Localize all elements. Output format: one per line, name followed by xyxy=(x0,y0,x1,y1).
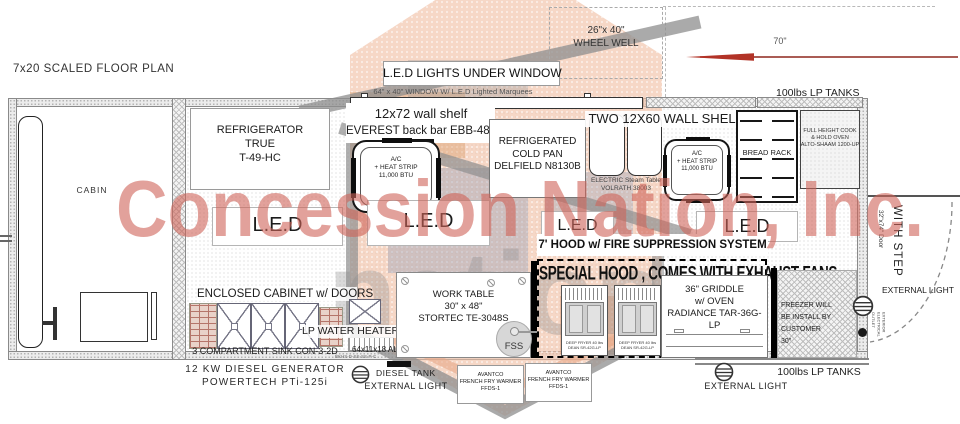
wheel-well-guide-h xyxy=(663,6,935,8)
sink-drainboard-left xyxy=(189,303,217,349)
bread-rack-shelves-right xyxy=(772,120,794,200)
bread-rack-label: BREAD RACK xyxy=(738,148,796,157)
work-table-screw-tl xyxy=(401,277,409,285)
ac-unit-2-tab-right xyxy=(727,155,731,187)
fss-stub-line xyxy=(519,331,537,333)
fryer-2-burner xyxy=(618,288,657,300)
griddle-line-2 xyxy=(666,346,763,347)
fryer-2-basket-right xyxy=(640,305,654,333)
ac-unit-2-label: A/C + HEAT STRIP 11,000 BTU xyxy=(666,151,728,174)
water-heater-label: LP WATER HEATER xyxy=(302,325,398,338)
fryer-1-basket-left xyxy=(569,305,583,333)
cabinet-part-no-label: BKHS-D-SS-SS-P-C xyxy=(335,354,395,359)
bread-rack: BREAD RACK xyxy=(736,110,798,203)
deep-fryer-1: DEEP FRYER 40 lbs DEAN SR-42G-LP xyxy=(561,285,608,356)
hitch-line-1 xyxy=(0,235,12,237)
diesel-tank-label: DIESEL TANK xyxy=(376,368,446,378)
external-light-label-1: EXTERNAL LIGHT xyxy=(358,381,454,392)
wheel-well-label: 26"x 40" WHEEL WELL xyxy=(549,25,663,50)
hood-side-panel-left xyxy=(531,261,537,358)
ac-unit-1-tab-left xyxy=(351,158,356,198)
ac-unit-2-tab-left xyxy=(663,155,667,187)
water-heater-unit xyxy=(349,299,381,324)
cook-hold-oven-label: FULL HEIGHT COOK & HOLD OVEN ALTO-SHAAM … xyxy=(800,128,860,149)
sink-label: 3 COMPARTMENT SINK CON-3-2D xyxy=(190,346,340,357)
lp-tank-rack-1 xyxy=(646,97,756,108)
back-bar-label: EVEREST back bar EBB-48-24 xyxy=(346,124,496,138)
fss-unit: FSS xyxy=(496,321,532,357)
sink-bowl-1 xyxy=(217,303,251,349)
cabin-label: CABIN xyxy=(62,185,122,196)
diesel-tank-bar xyxy=(387,361,411,367)
fryer-2-vat xyxy=(618,302,657,336)
external-light-icon-2 xyxy=(714,362,734,382)
page-title: 7x20 SCALED FLOOR PLAN xyxy=(13,63,213,75)
sink-bowl-2 xyxy=(251,303,285,349)
external-light-label-2: EXTERNAL LIGHT xyxy=(700,381,792,392)
fryer-2-label: DEEP FRYER 40 lbs DEAN SR-42G-LP xyxy=(615,340,660,350)
ac-unit-2-tab-top xyxy=(686,137,710,141)
fss-inner-circle xyxy=(510,327,519,336)
sink-bowl-2-drain xyxy=(265,323,272,330)
dimension-70-label: 70" xyxy=(762,36,798,47)
fry-warmer-2: AVANTCO FRENCH FRY WARMER FFDS-1 xyxy=(525,363,592,402)
external-light-label-3: EXTERNAL LIGHT xyxy=(876,285,960,296)
cook-hold-oven-box xyxy=(800,110,860,189)
work-table-screw-br xyxy=(487,279,495,287)
led-sign-1: L.E.D xyxy=(212,207,343,246)
wall-shelf-label: 12x72 wall shelf xyxy=(346,106,496,122)
lp-tanks-bottom-label: 100lbs LP TANKS xyxy=(777,366,861,379)
cabin-bench xyxy=(80,292,148,342)
generator-label: 12 KW DIESEL GENERATOR POWERTECH PTi-125… xyxy=(175,364,355,389)
work-table-screw-tr xyxy=(518,277,526,285)
lp-tank-rack-2 xyxy=(757,97,863,108)
cabin-bench-slat xyxy=(151,292,157,340)
fryer-1-basket-right xyxy=(587,305,601,333)
door-size-label: 32"x74" Door xyxy=(877,210,884,290)
led-sign-2: L.E.D xyxy=(367,200,490,246)
fryer-1-burner xyxy=(565,288,604,300)
window-size-label: 64" x 40" WINDOW W/ L.E.D Lighted Marque… xyxy=(368,87,538,96)
step-platform-line xyxy=(868,195,960,197)
griddle-label: 36" GRIDDLE w/ OVEN RADIANCE TAR-36G-LP xyxy=(662,284,767,332)
griddle-line-1 xyxy=(666,334,763,335)
griddle-notch-2 xyxy=(740,329,750,333)
led-lights-label: L.E.D LIGHTS UNDER WINDOW xyxy=(383,66,560,81)
ac-unit-2: A/C + HEAT STRIP 11,000 BTU xyxy=(664,139,730,201)
cabin-counter xyxy=(18,116,43,348)
freezer-note: FREEZER WILL BE INSTALL BY CUSTOMER 30" xyxy=(781,300,856,348)
dimension-70-arrowhead xyxy=(686,53,754,61)
two-wall-shelf-label: TWO 12X60 WALL SHELF xyxy=(585,111,747,127)
steam-table-label: ELECTRIC Steam Table VOLRATH 38003 xyxy=(580,177,672,193)
fryer-1-vat xyxy=(565,302,604,336)
window-tab-right xyxy=(584,93,591,98)
hitch-line-2 xyxy=(0,240,12,242)
hood-label: 7' HOOD w/ FIRE SUPPRESSION SYSTEM xyxy=(537,238,768,252)
fryer-2-basket-left xyxy=(622,305,636,333)
griddle-notch-1 xyxy=(674,329,684,333)
work-table-label: WORK TABLE 30" x 48" STORTEC TE-3048S xyxy=(397,289,530,325)
electrical-outlet-label: EXTERIOR ELECTRICAL OUTLET xyxy=(871,312,887,358)
cold-pan-label: REFRIGERATED COLD PAN DELFIELD N8130B xyxy=(489,136,586,174)
work-table-screw-bl xyxy=(401,345,409,353)
floor-plan-canvas: nation 7x20 SCALED FLOOR PLAN 26"x 40" W… xyxy=(0,0,960,424)
deep-fryer-2: DEEP FRYER 40 lbs DEAN SR-42G-LP xyxy=(614,285,661,356)
cabin-handle-bar xyxy=(53,307,57,340)
wheel-well-guide-v xyxy=(665,7,667,97)
ac-unit-2-tab-bottom xyxy=(686,199,710,203)
fryer-1-label: DEEP FRYER 40 lbs DEAN SR-42G-LP xyxy=(562,340,607,350)
cabin-partition-wall xyxy=(172,98,186,360)
fss-label: FSS xyxy=(497,341,531,353)
sink-bowl-1-drain xyxy=(231,323,238,330)
wall-left xyxy=(8,98,17,360)
electrical-outlet-dot xyxy=(858,328,867,337)
griddle-box: 36" GRIDDLE w/ OVEN RADIANCE TAR-36G-LP xyxy=(661,275,768,358)
ac-unit-1-tab-top xyxy=(382,138,412,143)
window-tab-left xyxy=(361,93,368,98)
ac-unit-1-label: A/C + HEAT STRIP 11,000 BTU xyxy=(354,156,438,180)
refrigerator-label: REFRIGERATOR TRUE T-49-HC xyxy=(190,124,330,165)
fry-warmer-1: AVANTCO FRENCH FRY WARMER FFDS-1 xyxy=(457,365,524,404)
bread-rack-shelves-left xyxy=(740,120,762,200)
ac-unit-1-tab-right xyxy=(436,158,441,198)
